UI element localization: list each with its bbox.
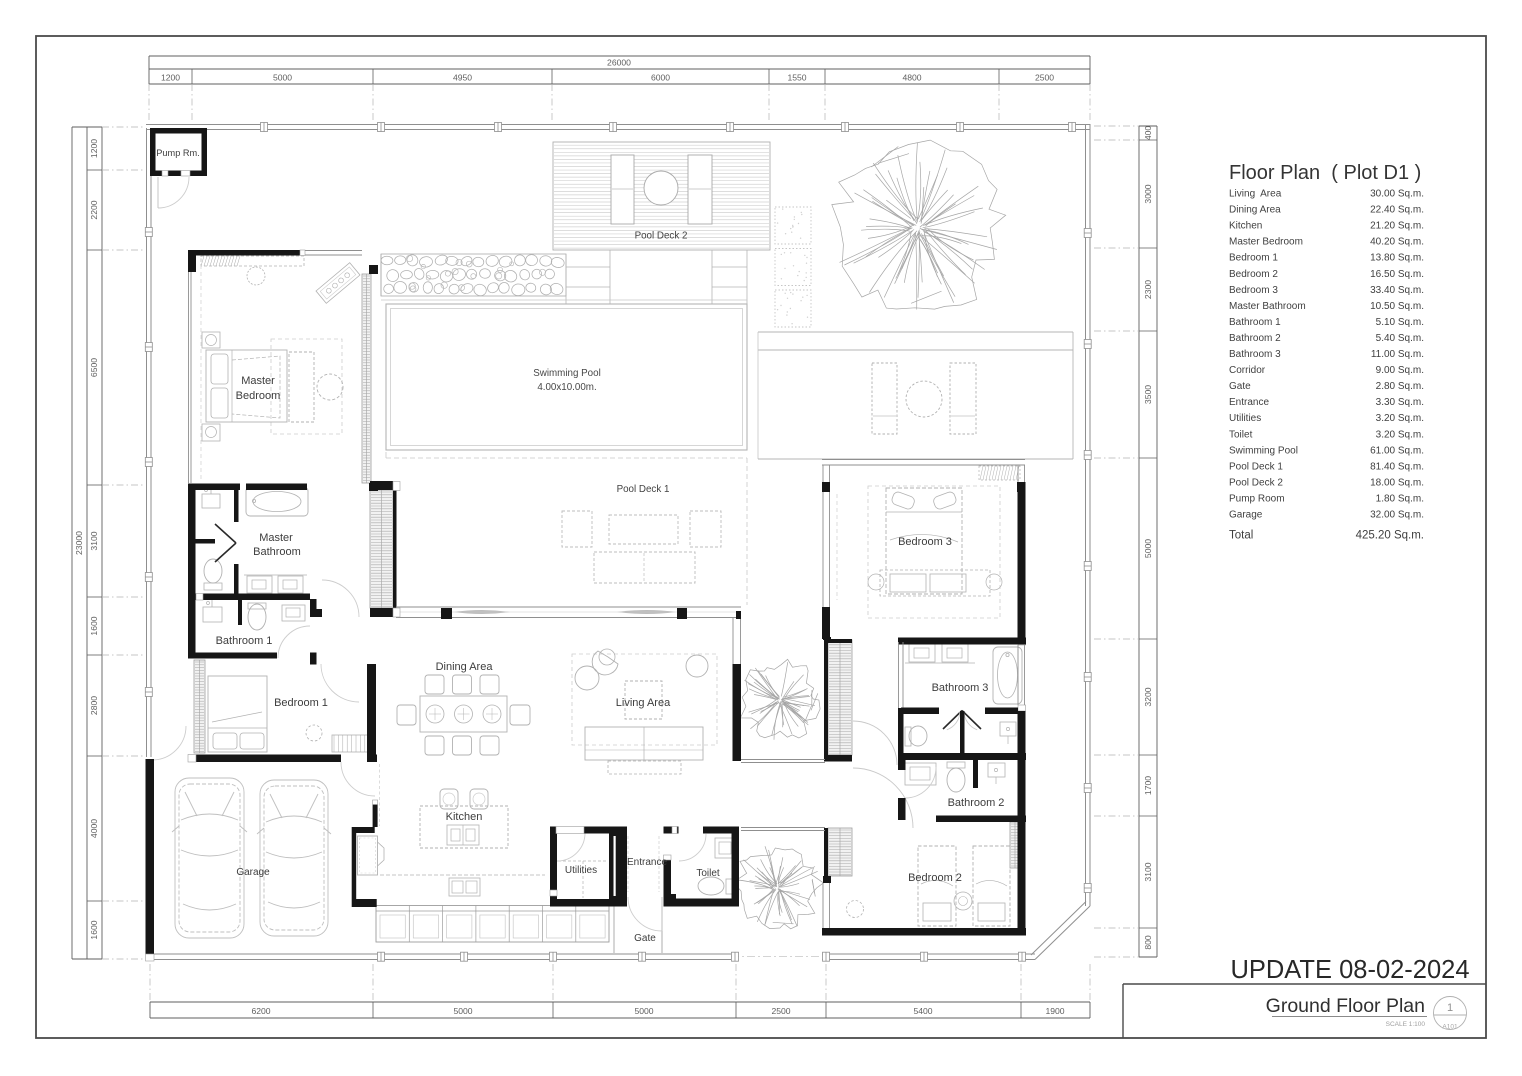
svg-text:Pool Deck 2: Pool Deck 2 — [635, 231, 688, 242]
svg-text:5000: 5000 — [634, 1006, 653, 1016]
svg-text:Utilities: Utilities — [565, 865, 597, 876]
svg-text:Swimming Pool: Swimming Pool — [533, 368, 601, 379]
svg-text:1700: 1700 — [1143, 776, 1153, 795]
svg-text:Living Area: Living Area — [616, 697, 671, 709]
svg-text:9.00 Sq.m.: 9.00 Sq.m. — [1376, 365, 1424, 376]
svg-text:21.20 Sq.m.: 21.20 Sq.m. — [1370, 221, 1424, 232]
svg-text:Bedroom 1: Bedroom 1 — [274, 697, 328, 709]
svg-text:1200: 1200 — [161, 73, 180, 83]
svg-text:5000: 5000 — [273, 73, 292, 83]
svg-text:1900: 1900 — [1045, 1006, 1064, 1016]
svg-text:Kitchen: Kitchen — [1229, 221, 1262, 232]
svg-text:3.20 Sq.m.: 3.20 Sq.m. — [1376, 413, 1424, 424]
svg-text:Toilet: Toilet — [1229, 429, 1253, 440]
svg-text:6000: 6000 — [651, 73, 670, 83]
svg-text:UPDATE 08-02-2024: UPDATE 08-02-2024 — [1230, 956, 1469, 984]
svg-text:Bedroom 3: Bedroom 3 — [1229, 285, 1278, 296]
svg-text:Garage: Garage — [236, 867, 270, 878]
svg-text:1600: 1600 — [89, 920, 99, 939]
svg-text:5000: 5000 — [1143, 539, 1153, 558]
svg-text:Entrance: Entrance — [1229, 397, 1269, 408]
svg-text:Master: Master — [241, 375, 275, 387]
svg-text:Gate: Gate — [634, 933, 656, 944]
svg-text:40.20 Sq.m.: 40.20 Sq.m. — [1370, 237, 1424, 248]
svg-text:3000: 3000 — [1143, 184, 1153, 203]
svg-text:5000: 5000 — [453, 1006, 472, 1016]
svg-text:Bathroom: Bathroom — [253, 546, 301, 558]
svg-text:3100: 3100 — [89, 531, 99, 550]
svg-text:Pump Room: Pump Room — [1229, 493, 1285, 504]
svg-text:Floor Plan ( Plot D1 ): Floor Plan ( Plot D1 ) — [1229, 162, 1421, 184]
svg-text:2200: 2200 — [89, 200, 99, 219]
svg-text:32.00 Sq.m.: 32.00 Sq.m. — [1370, 510, 1424, 521]
svg-text:10.50 Sq.m.: 10.50 Sq.m. — [1370, 301, 1424, 312]
svg-text:6200: 6200 — [251, 1006, 270, 1016]
svg-text:18.00 Sq.m.: 18.00 Sq.m. — [1370, 477, 1424, 488]
svg-text:A101: A101 — [1442, 1024, 1458, 1031]
svg-text:1: 1 — [1447, 1002, 1453, 1014]
svg-text:Bedroom: Bedroom — [236, 390, 281, 402]
svg-text:4000: 4000 — [89, 819, 99, 838]
svg-text:23000: 23000 — [74, 531, 84, 555]
svg-text:5.10 Sq.m.: 5.10 Sq.m. — [1376, 317, 1424, 328]
svg-text:3.20 Sq.m.: 3.20 Sq.m. — [1376, 429, 1424, 440]
svg-text:Bathroom 1: Bathroom 1 — [216, 635, 273, 647]
svg-text:Toilet: Toilet — [696, 868, 720, 879]
svg-text:Bathroom 2: Bathroom 2 — [1229, 333, 1281, 344]
svg-text:2.80 Sq.m.: 2.80 Sq.m. — [1376, 381, 1424, 392]
svg-text:Bedroom 2: Bedroom 2 — [1229, 269, 1278, 280]
svg-text:Bedroom 2: Bedroom 2 — [908, 872, 962, 884]
svg-text:22.40 Sq.m.: 22.40 Sq.m. — [1370, 205, 1424, 216]
svg-text:Ground Floor Plan: Ground Floor Plan — [1266, 995, 1425, 1017]
svg-text:1.80 Sq.m.: 1.80 Sq.m. — [1376, 493, 1424, 504]
svg-text:3.30 Sq.m.: 3.30 Sq.m. — [1376, 397, 1424, 408]
svg-text:11.00 Sq.m.: 11.00 Sq.m. — [1371, 349, 1424, 360]
svg-text:Master Bedroom: Master Bedroom — [1229, 237, 1303, 248]
svg-text:4800: 4800 — [902, 73, 921, 83]
svg-text:Bedroom 1: Bedroom 1 — [1229, 253, 1278, 264]
svg-text:Dining Area: Dining Area — [436, 661, 494, 673]
svg-text:Corridor: Corridor — [1229, 365, 1266, 376]
svg-text:800: 800 — [1143, 935, 1153, 950]
svg-text:Pool Deck 2: Pool Deck 2 — [1229, 477, 1283, 488]
svg-text:3200: 3200 — [1143, 687, 1153, 706]
svg-text:4950: 4950 — [453, 73, 472, 83]
svg-text:400: 400 — [1143, 126, 1153, 141]
svg-text:SCALE 1:100: SCALE 1:100 — [1386, 1021, 1426, 1028]
svg-text:Bathroom 2: Bathroom 2 — [948, 797, 1005, 809]
svg-text:Bathroom 3: Bathroom 3 — [1229, 349, 1281, 360]
svg-text:2500: 2500 — [1035, 73, 1054, 83]
svg-text:Utilities: Utilities — [1229, 413, 1261, 424]
svg-text:5.40 Sq.m.: 5.40 Sq.m. — [1376, 333, 1424, 344]
svg-text:4.00x10.00m.: 4.00x10.00m. — [537, 382, 596, 393]
svg-text:Master: Master — [259, 532, 293, 544]
svg-text:Garage: Garage — [1229, 510, 1263, 521]
svg-text:2300: 2300 — [1143, 280, 1153, 299]
svg-text:30.00 Sq.m.: 30.00 Sq.m. — [1370, 189, 1424, 200]
svg-text:81.40 Sq.m.: 81.40 Sq.m. — [1370, 461, 1424, 472]
svg-text:5400: 5400 — [913, 1006, 932, 1016]
svg-text:1550: 1550 — [787, 73, 806, 83]
svg-text:3100: 3100 — [1143, 862, 1153, 881]
svg-text:16.50 Sq.m.: 16.50 Sq.m. — [1370, 269, 1424, 280]
svg-text:13.80 Sq.m.: 13.80 Sq.m. — [1370, 253, 1424, 264]
svg-text:Swimming Pool: Swimming Pool — [1229, 445, 1298, 456]
svg-text:2500: 2500 — [771, 1006, 790, 1016]
svg-text:Kitchen: Kitchen — [446, 811, 483, 823]
svg-text:Pool Deck 1: Pool Deck 1 — [1229, 461, 1283, 472]
svg-text:Dining Area: Dining Area — [1229, 205, 1281, 216]
svg-text:2800: 2800 — [89, 696, 99, 715]
svg-text:Bathroom 1: Bathroom 1 — [1229, 317, 1281, 328]
svg-text:Pool Deck 1: Pool Deck 1 — [617, 484, 670, 495]
svg-text:33.40 Sq.m.: 33.40 Sq.m. — [1370, 285, 1424, 296]
svg-text:Pump Rm.: Pump Rm. — [156, 148, 199, 158]
svg-text:Entrance: Entrance — [627, 857, 667, 868]
svg-text:Bedroom 3: Bedroom 3 — [898, 536, 952, 548]
svg-text:Bathroom 3: Bathroom 3 — [932, 682, 989, 694]
svg-text:1600: 1600 — [89, 616, 99, 635]
svg-text:Master Bathroom: Master Bathroom — [1229, 301, 1306, 312]
svg-text:Living Area: Living Area — [1229, 189, 1282, 200]
svg-text:425.20 Sq.m.: 425.20 Sq.m. — [1356, 530, 1424, 542]
svg-text:6500: 6500 — [89, 358, 99, 377]
svg-text:1200: 1200 — [89, 139, 99, 158]
svg-text:Total: Total — [1229, 530, 1253, 542]
svg-text:26000: 26000 — [607, 58, 631, 68]
svg-text:Gate: Gate — [1229, 381, 1251, 392]
svg-text:61.00 Sq.m.: 61.00 Sq.m. — [1370, 445, 1424, 456]
svg-text:3500: 3500 — [1143, 385, 1153, 404]
